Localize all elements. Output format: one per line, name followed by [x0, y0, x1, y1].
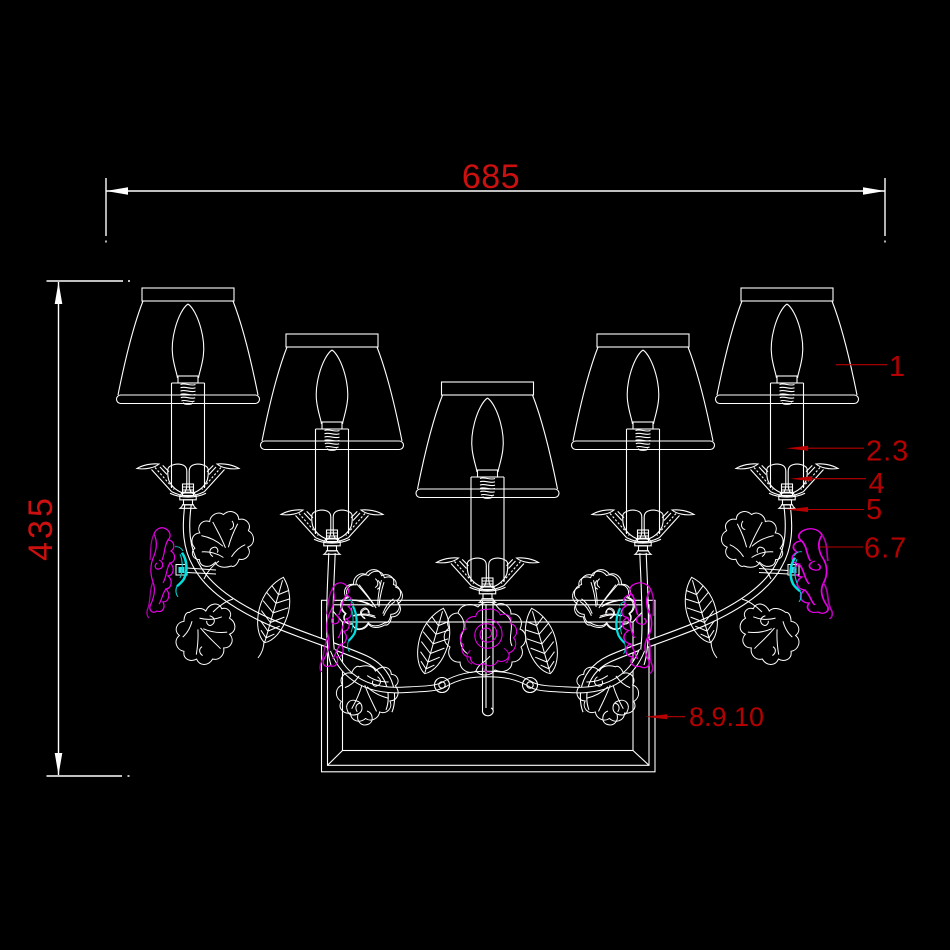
svg-text:5: 5 [866, 494, 883, 526]
svg-text:435: 435 [22, 495, 60, 561]
svg-text:1: 1 [889, 351, 906, 383]
svg-text:685: 685 [462, 158, 520, 196]
svg-text:6.7: 6.7 [864, 533, 907, 565]
svg-text:8.9.10: 8.9.10 [689, 702, 764, 732]
svg-text:2.3: 2.3 [866, 436, 909, 468]
